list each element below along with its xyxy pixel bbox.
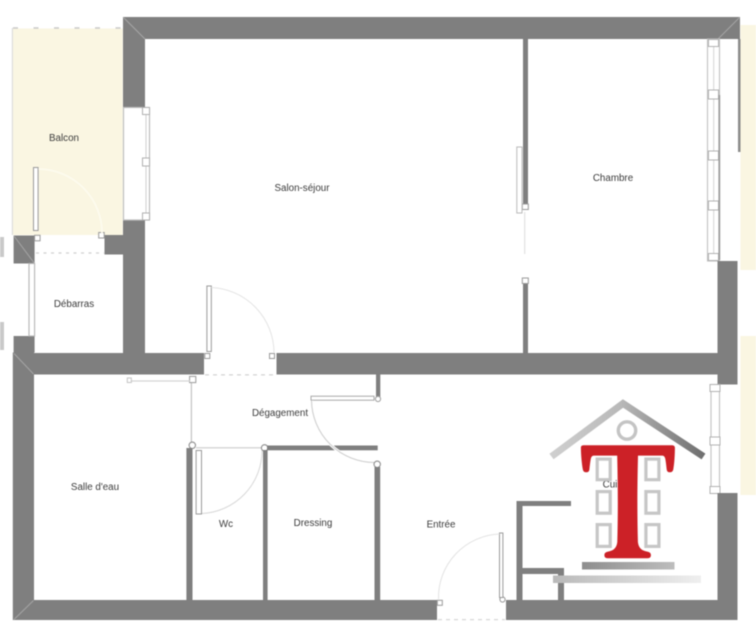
- svg-text:Dégagement: Dégagement: [252, 408, 308, 419]
- svg-text:Salle d'eau: Salle d'eau: [71, 482, 119, 493]
- svg-text:Débarras: Débarras: [54, 299, 94, 310]
- svg-text:Wc: Wc: [219, 519, 233, 530]
- svg-text:Salon-séjour: Salon-séjour: [274, 183, 330, 194]
- svg-text:Balcon: Balcon: [49, 133, 79, 144]
- svg-text:Entrée: Entrée: [427, 520, 456, 531]
- svg-text:Dressing: Dressing: [294, 518, 333, 529]
- svg-text:Chambre: Chambre: [593, 173, 634, 184]
